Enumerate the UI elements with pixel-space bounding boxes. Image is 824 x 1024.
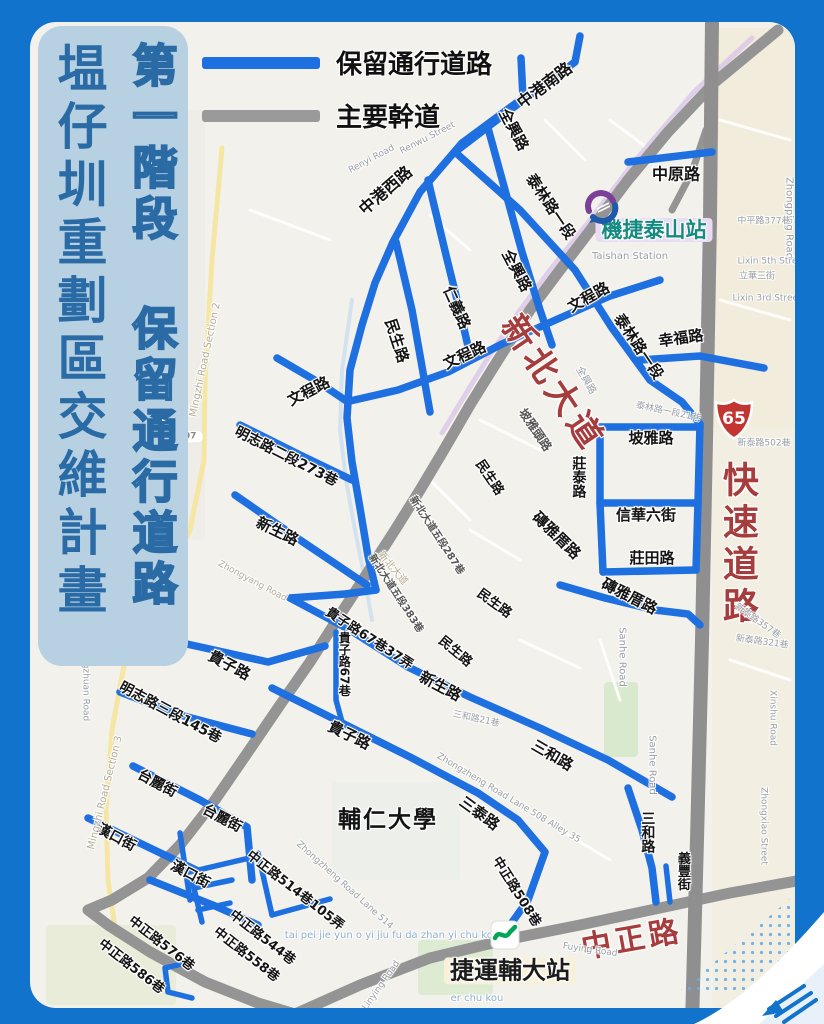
road-label: 文程路 xyxy=(441,339,488,372)
road-label: 貴子路67巷 xyxy=(338,632,351,697)
road-label: tai pei jie yun o yi jiu fu da zhan yi c… xyxy=(285,931,499,942)
page-curl-icon xyxy=(664,904,824,1024)
legend-line-retained-road xyxy=(202,57,320,69)
road-label: Lixin 3rd Street xyxy=(732,294,795,303)
road-label: 台麗街 xyxy=(135,768,179,801)
road-label: 中港南路 xyxy=(514,60,575,112)
road-label: Lixin 5th Street xyxy=(737,257,795,266)
road-label: 輔仁大學 xyxy=(338,808,438,832)
road-label: 明志路二段273巷 xyxy=(232,425,340,489)
road-label: Zhongyang Road xyxy=(216,560,288,604)
legend-line-main-road xyxy=(202,110,320,122)
road-label: 文程路 xyxy=(565,280,612,316)
road-label: 中平路377巷 xyxy=(737,217,790,226)
road-label: Sanhe Road xyxy=(646,735,657,795)
road-label: 泰林路一段 xyxy=(610,312,665,383)
poster-title-main: 塭仔圳重劃區交維計畫 xyxy=(43,42,115,622)
legend-row-retained: 保留通行道路 xyxy=(202,44,492,81)
station-label-fuda: 捷運輔大站 xyxy=(444,957,576,984)
road-label: 貴子路 xyxy=(325,719,372,753)
road-label: 民生路 xyxy=(382,317,411,365)
road-label: 新泰路502巷 xyxy=(737,439,790,448)
road-label: 泰林路一段21巷 xyxy=(635,402,701,425)
road-label: 中正路514巷105弄 xyxy=(244,849,346,933)
road-label: Zhongxiao Street xyxy=(758,787,767,865)
road-label: 民生路 xyxy=(436,634,475,670)
legend-label-retained: 保留通行道路 xyxy=(336,44,492,81)
taoyuan-metro-logo-icon xyxy=(583,189,621,227)
road-label: 民生路 xyxy=(472,458,505,498)
road-label: 全興路 xyxy=(495,106,530,153)
road-label: 民生路 xyxy=(474,587,514,621)
road-label: 仁義路 xyxy=(440,284,473,332)
legend-row-main: 主要幹道 xyxy=(202,97,492,134)
road-label: 中正路508巷 xyxy=(489,855,543,929)
road-label: 明志路三段145巷 xyxy=(117,680,224,746)
expressway-65-shield: 65 xyxy=(714,398,754,440)
shield-icon: 65 xyxy=(714,398,754,440)
road-label: 新生路 xyxy=(416,669,463,704)
legend-label-main: 主要幹道 xyxy=(336,97,440,134)
road-label: 莊泰路 xyxy=(571,456,586,498)
road-label: 磚雅厝路 xyxy=(529,509,583,562)
road-label: 台麗街 xyxy=(200,803,244,836)
road-label: 立華三街 xyxy=(739,272,775,281)
road-label: Sanhe Road xyxy=(616,627,627,687)
road-label: 莊田路 xyxy=(629,551,674,567)
road-label: 中港西路 xyxy=(356,164,415,219)
road-label: 三和路 xyxy=(640,811,655,853)
road-label: 貴子路 xyxy=(205,648,252,683)
road-label: 三和路21巷 xyxy=(452,710,500,729)
metro-fuda-logo-icon xyxy=(490,920,520,950)
road-label: 三泰路 xyxy=(456,794,502,833)
road-label: Taishan Station xyxy=(592,252,668,263)
road-label: 三和路 xyxy=(529,738,576,774)
road-label: Zhongzheng Road Lane 514 xyxy=(294,840,394,932)
title-card: 塭仔圳重劃區交維計畫 第一階段 保留通行道路 xyxy=(38,26,188,666)
road-label: Linying Road xyxy=(362,960,403,1008)
poster-title-phase: 第一階段 保留通行道路 xyxy=(119,42,184,611)
road-label: 磚雅厝路 xyxy=(599,576,660,617)
road-label: 新北大道五段287巷 xyxy=(407,495,465,577)
road-label: 新泰路321巷 xyxy=(735,635,789,652)
road-label: 泰林路一段 xyxy=(522,172,577,243)
road-label: 漢口街 xyxy=(168,859,212,892)
road-label: 中原路 xyxy=(652,167,700,184)
road-label: 新生路 xyxy=(253,515,300,549)
road-label: 全興路 xyxy=(498,247,533,294)
road-label: 坡雅路 xyxy=(628,431,673,447)
road-label: 信華六街 xyxy=(616,508,676,524)
legend: 保留通行道路 主要幹道 xyxy=(202,44,492,150)
road-label: Xinshu Road xyxy=(767,690,776,746)
shield-number: 65 xyxy=(722,409,746,429)
road-label: er chu kou xyxy=(451,994,504,1005)
road-label: Mingzhi Road Section 2 xyxy=(189,302,224,418)
poster-root: { "title_card": { "line1": "塭仔圳重劃區交維計畫",… xyxy=(0,0,824,1024)
road-label: 幸福路 xyxy=(658,328,705,350)
road-label: 文程路 xyxy=(285,375,332,409)
page-curl-watermark xyxy=(654,884,824,1024)
road-label: 貴子路67巷37弄 xyxy=(323,606,415,673)
